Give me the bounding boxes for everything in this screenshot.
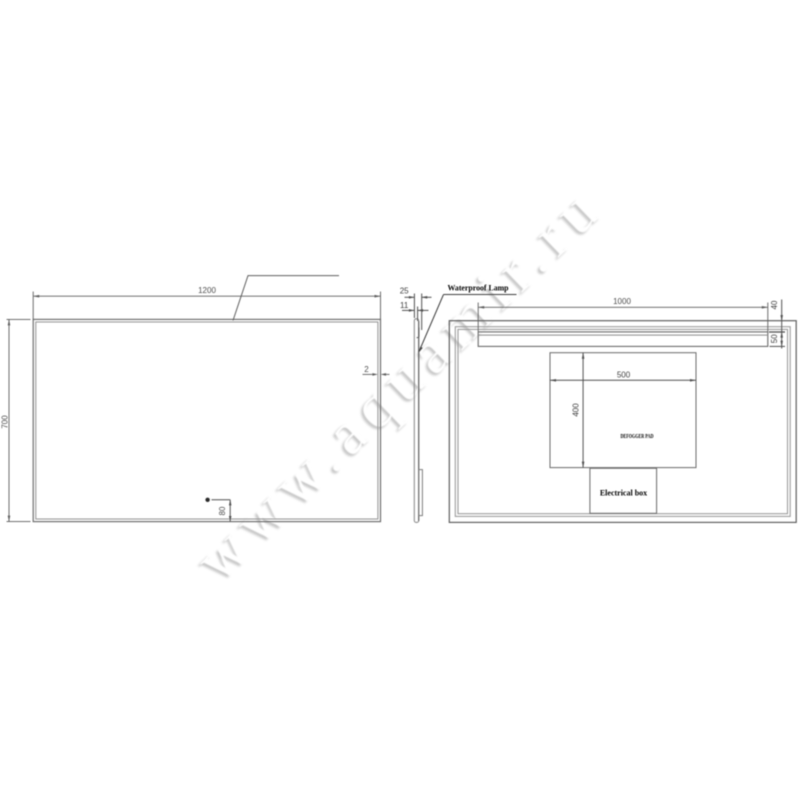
svg-text:50: 50 [770, 334, 779, 343]
svg-text:2: 2 [364, 365, 369, 374]
svg-text:DEFOGGER PAD: DEFOGGER PAD [621, 433, 654, 440]
svg-text:Electrical box: Electrical box [600, 489, 647, 498]
svg-text:www.aquamir.ru: www.aquamir.ru [183, 171, 618, 594]
svg-text:40: 40 [770, 300, 779, 309]
svg-text:11: 11 [400, 301, 409, 310]
svg-text:400: 400 [572, 403, 581, 417]
svg-text:25: 25 [400, 286, 409, 295]
svg-text:1000: 1000 [613, 297, 631, 306]
svg-text:Waterproof Lamp: Waterproof Lamp [448, 283, 509, 292]
svg-text:700: 700 [1, 415, 10, 429]
svg-text:500: 500 [617, 370, 631, 379]
svg-text:80: 80 [218, 506, 227, 515]
svg-text:1200: 1200 [198, 286, 216, 295]
